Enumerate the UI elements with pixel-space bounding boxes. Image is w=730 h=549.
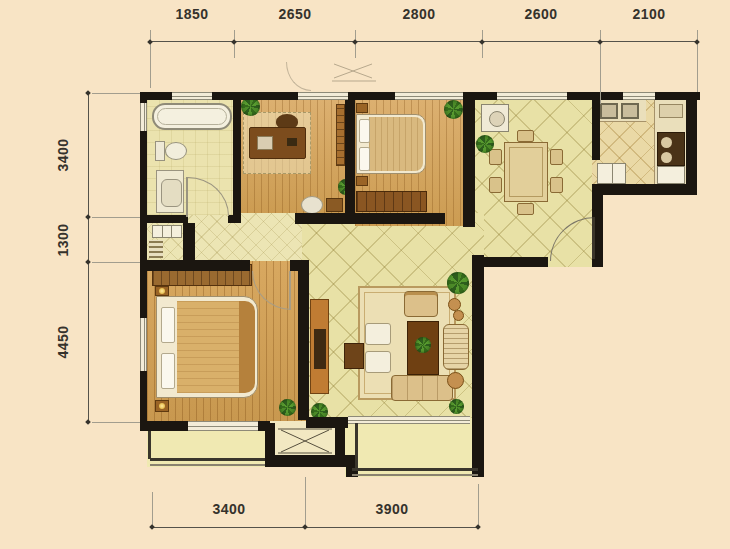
tick-mark (85, 90, 91, 96)
window (140, 103, 147, 131)
upper-floor-x-icon (330, 60, 378, 86)
pillow (161, 307, 175, 343)
dimension-line-bottom (152, 527, 479, 528)
window (298, 92, 348, 100)
plant-icon (447, 272, 469, 294)
tick-mark (85, 419, 91, 425)
wall-bedroom2-bottom (295, 213, 445, 224)
bed-double (356, 114, 426, 174)
window (497, 92, 567, 100)
balcony-rail-inner (150, 464, 265, 466)
plant-icon (415, 337, 431, 353)
study-pouf (301, 196, 323, 214)
plant-icon (476, 135, 494, 153)
dining-chair (489, 149, 502, 165)
dining-table (504, 142, 548, 202)
washer-icon (657, 166, 685, 184)
window (395, 92, 463, 100)
dim-top-5: 2100 (632, 6, 665, 22)
window (172, 92, 212, 100)
bed-blanket (177, 301, 239, 393)
balcony-rail (148, 431, 151, 459)
master-bed (156, 296, 258, 398)
decor-pot (453, 310, 464, 321)
dim-top-3: 2800 (402, 6, 435, 22)
bathroom-vanity (156, 170, 184, 213)
cabinet-divider (612, 164, 613, 183)
upper-floor-door-arc (286, 62, 311, 91)
bed-runner (239, 301, 255, 393)
balcony-rail (355, 423, 358, 470)
wall-bathroom-bottom (228, 215, 241, 223)
wardrobe (356, 191, 427, 212)
side-table (344, 343, 364, 369)
dining-chair (550, 177, 563, 193)
extension-line (305, 477, 306, 527)
stove-icon (657, 132, 685, 166)
fridge-detail (489, 111, 505, 127)
extension-line (92, 217, 140, 218)
dimension-line-left (88, 93, 89, 422)
window (623, 92, 655, 100)
desk (249, 127, 306, 159)
floor-plan: 1850 2650 2800 2600 2100 3400 1300 4450 … (0, 0, 730, 549)
wall-entry-corner (594, 257, 603, 267)
ac-platform-wall (265, 455, 357, 467)
plant-icon (279, 399, 296, 416)
wall-master-top (147, 260, 250, 271)
kitchen-sink (621, 103, 639, 119)
entry-door-leaf (592, 217, 595, 259)
dim-bottom-1: 3400 (212, 501, 245, 517)
dim-top-4: 2600 (524, 6, 557, 22)
dining-chair (517, 130, 534, 142)
wall-kitchen-right (686, 92, 697, 195)
tv-icon (314, 329, 326, 369)
lamp-icon (159, 403, 165, 409)
plant-icon (449, 399, 464, 414)
balcony-rail-inner (352, 474, 478, 476)
pillow (359, 119, 370, 143)
lamp-icon (159, 288, 165, 294)
shelf-divider (162, 226, 163, 237)
chaise-bench (443, 324, 469, 370)
bathtub-rim (157, 108, 227, 125)
wall-bathroom-right (233, 100, 241, 223)
tick-mark (475, 524, 481, 530)
dining-chair (517, 203, 534, 215)
kitchen-prep-area (659, 104, 683, 118)
accent-chair (365, 323, 391, 345)
sofa (391, 375, 453, 401)
balcony-sliding-door (188, 421, 258, 431)
window (140, 318, 147, 371)
bed-blanket (369, 117, 423, 171)
plant-icon (444, 100, 463, 119)
decor-pot (447, 372, 464, 389)
pillow (161, 353, 175, 389)
wall-exterior-left (140, 92, 147, 431)
wall-kitchen-left (592, 100, 600, 160)
extension-line (92, 422, 140, 423)
table-border (509, 147, 543, 197)
toilet-tank (155, 141, 165, 161)
bathroom-door-leaf (186, 177, 188, 217)
pillow (359, 147, 370, 171)
master-door-leaf (289, 271, 291, 310)
extension-line (92, 93, 140, 94)
dim-left-2: 1300 (55, 223, 71, 256)
dim-top-2: 2650 (278, 6, 311, 22)
ac-platform-x-icon (277, 426, 333, 456)
balcony-sliding-door (348, 416, 470, 424)
desk-item (287, 138, 297, 146)
tick-mark (694, 39, 700, 45)
study-side-table (326, 198, 343, 212)
closet-rack (149, 240, 163, 258)
accent-chair (365, 351, 391, 373)
desk-lamp-icon (257, 136, 273, 150)
extension-line (478, 484, 479, 527)
wall-kitchen-bottom (592, 184, 697, 195)
kitchen-sink (600, 103, 618, 119)
nightstand (356, 103, 368, 113)
dim-top-1: 1850 (175, 6, 208, 22)
dining-chair (550, 149, 563, 165)
extension-line (152, 492, 153, 527)
nightstand (356, 176, 368, 186)
bookshelf (336, 104, 345, 166)
fridge-icon (481, 104, 509, 132)
dining-chair (489, 177, 502, 193)
wall-master-right (298, 261, 309, 420)
tick-mark (85, 214, 91, 220)
wall-bedroom2-right (463, 92, 475, 227)
toilet-icon (165, 142, 187, 160)
dim-bottom-2: 3900 (375, 501, 408, 517)
wall-study-bedroom2 (345, 100, 355, 213)
tick-mark (149, 524, 155, 530)
balcony-rail (150, 458, 265, 461)
shelf-divider (171, 226, 172, 237)
kitchen-cabinet (597, 163, 626, 184)
wall-closet-divider (183, 223, 195, 261)
dim-left-3: 4450 (55, 325, 71, 358)
closet-shelf (152, 225, 182, 238)
bathtub (152, 103, 232, 130)
tick-mark (85, 259, 91, 265)
extension-line (92, 262, 140, 263)
burner-icon (661, 137, 672, 148)
dim-left-1: 3400 (55, 138, 71, 171)
armchair (404, 291, 438, 317)
tick-mark (302, 524, 308, 530)
wall-living-right (472, 255, 484, 477)
balcony-left-floor (147, 431, 265, 467)
burner-icon (661, 152, 672, 163)
balcony-rail (352, 468, 478, 471)
wall-bathroom-bottom (147, 215, 188, 223)
tv-cabinet (310, 299, 329, 394)
sink-basin-icon (161, 179, 182, 207)
